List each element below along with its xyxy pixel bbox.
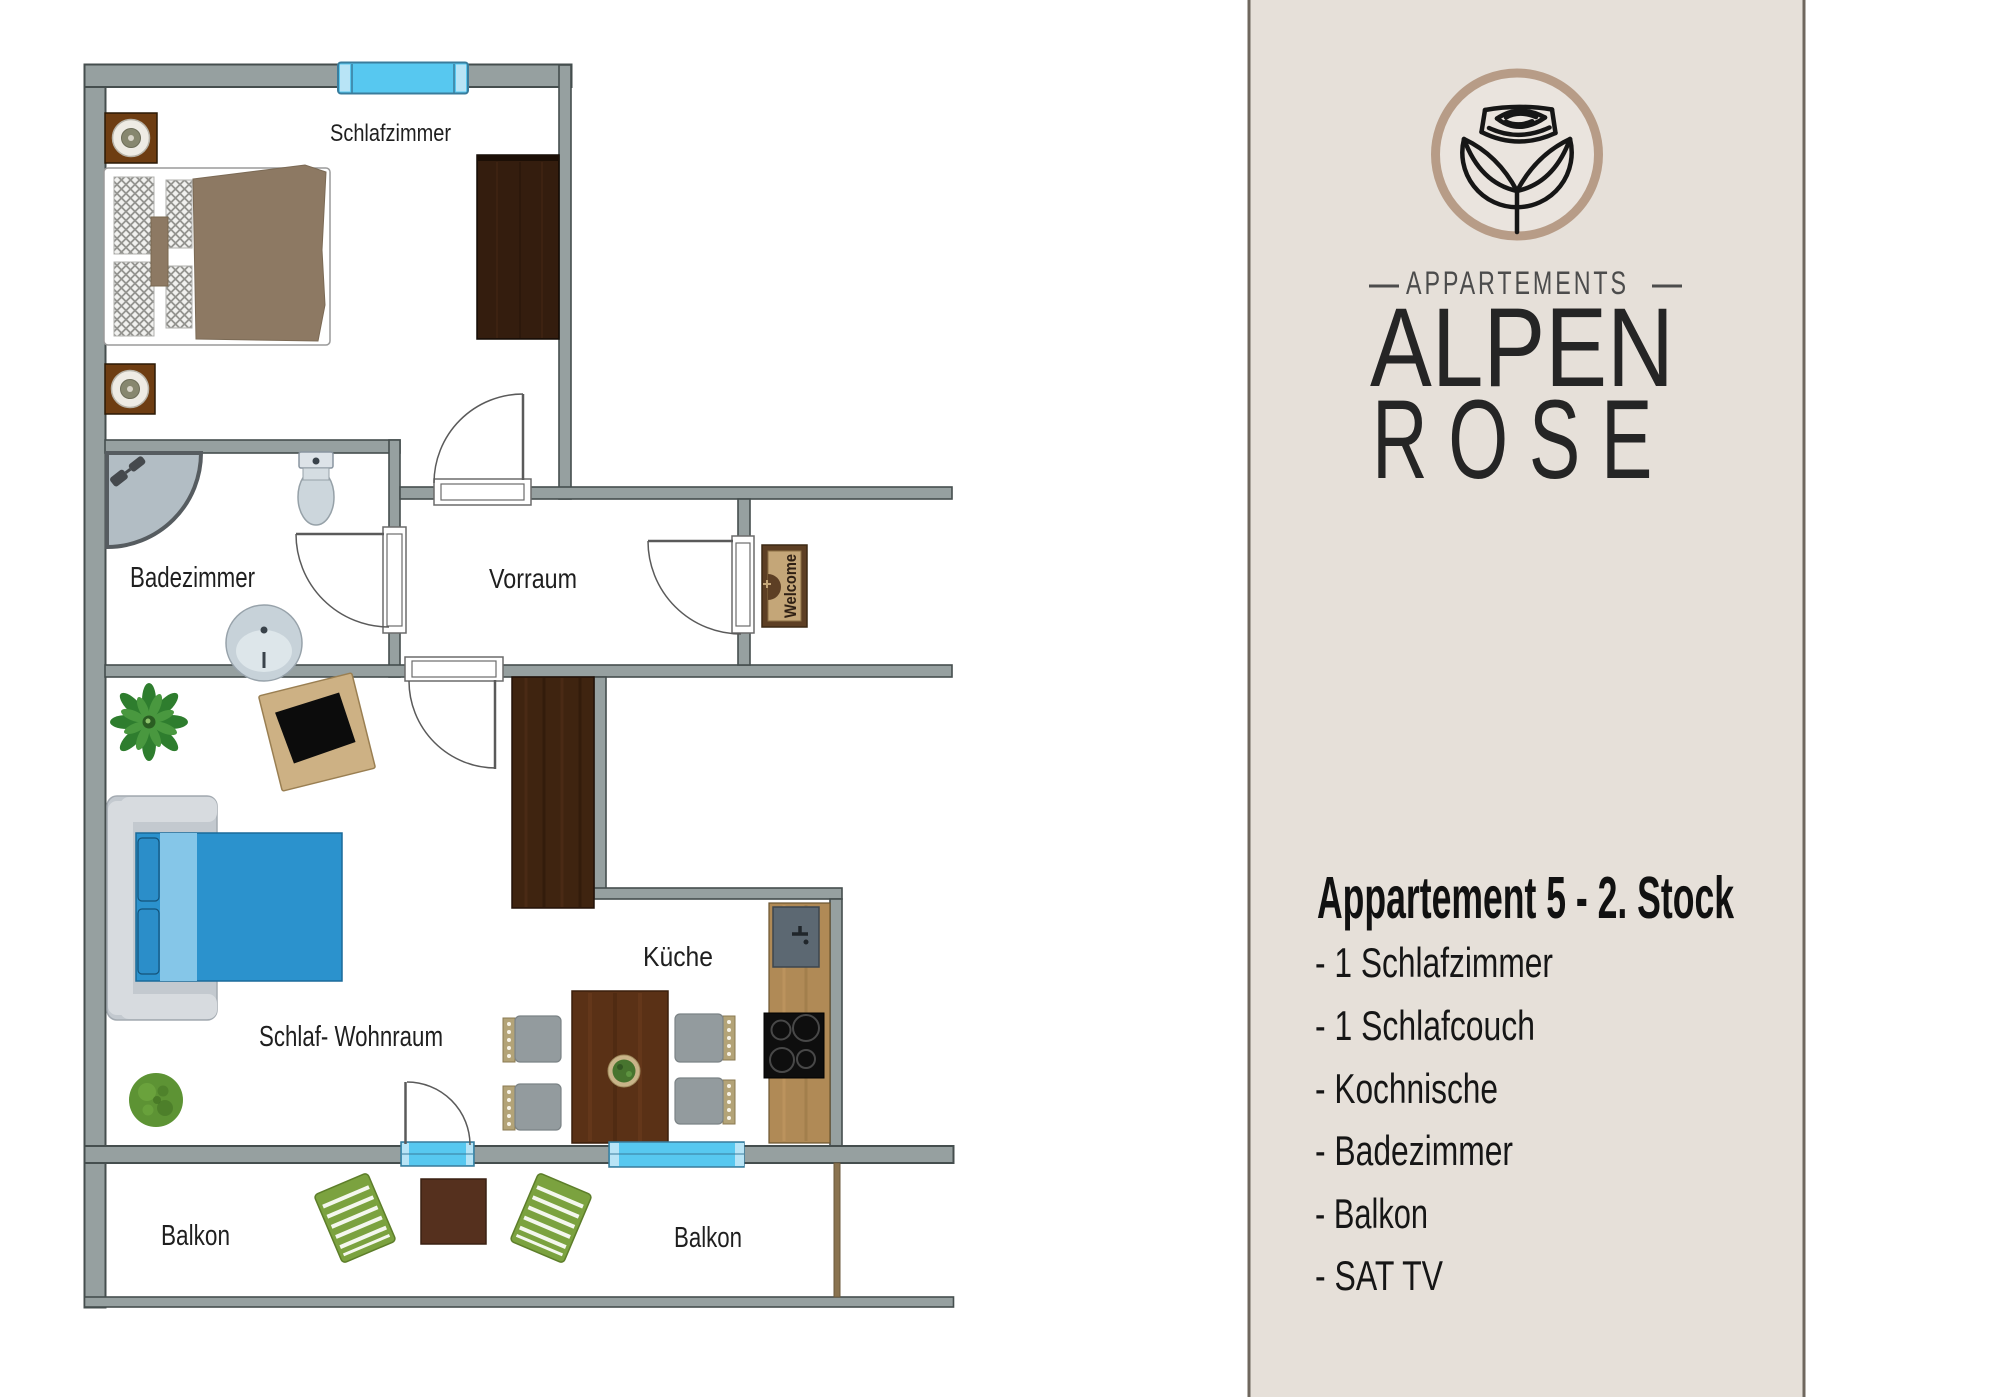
svg-text:Balkon: Balkon <box>161 1220 230 1252</box>
svg-text:Welcome: Welcome <box>781 554 800 618</box>
svg-text:- Badezimmer: - Badezimmer <box>1315 1127 1513 1174</box>
svg-text:Badezimmer: Badezimmer <box>130 562 255 594</box>
svg-text:- Kochnische: - Kochnische <box>1315 1065 1498 1112</box>
svg-text:Balkon: Balkon <box>674 1222 742 1254</box>
svg-text:Appartement 5 - 2. Stock: Appartement 5 - 2. Stock <box>1317 865 1734 931</box>
svg-text:- SAT TV: - SAT TV <box>1315 1252 1443 1299</box>
svg-text:- 1 Schlafzimmer: - 1 Schlafzimmer <box>1315 939 1553 986</box>
svg-text:Küche: Küche <box>643 941 713 972</box>
svg-text:ROSE: ROSE <box>1372 377 1673 502</box>
svg-text:- Balkon: - Balkon <box>1315 1190 1428 1237</box>
svg-text:Vorraum: Vorraum <box>489 563 577 594</box>
svg-text:Schlafzimmer: Schlafzimmer <box>330 120 451 147</box>
svg-text:Schlaf- Wohnraum: Schlaf- Wohnraum <box>259 1021 443 1053</box>
svg-text:- 1 Schlafcouch: - 1 Schlafcouch <box>1315 1002 1535 1049</box>
